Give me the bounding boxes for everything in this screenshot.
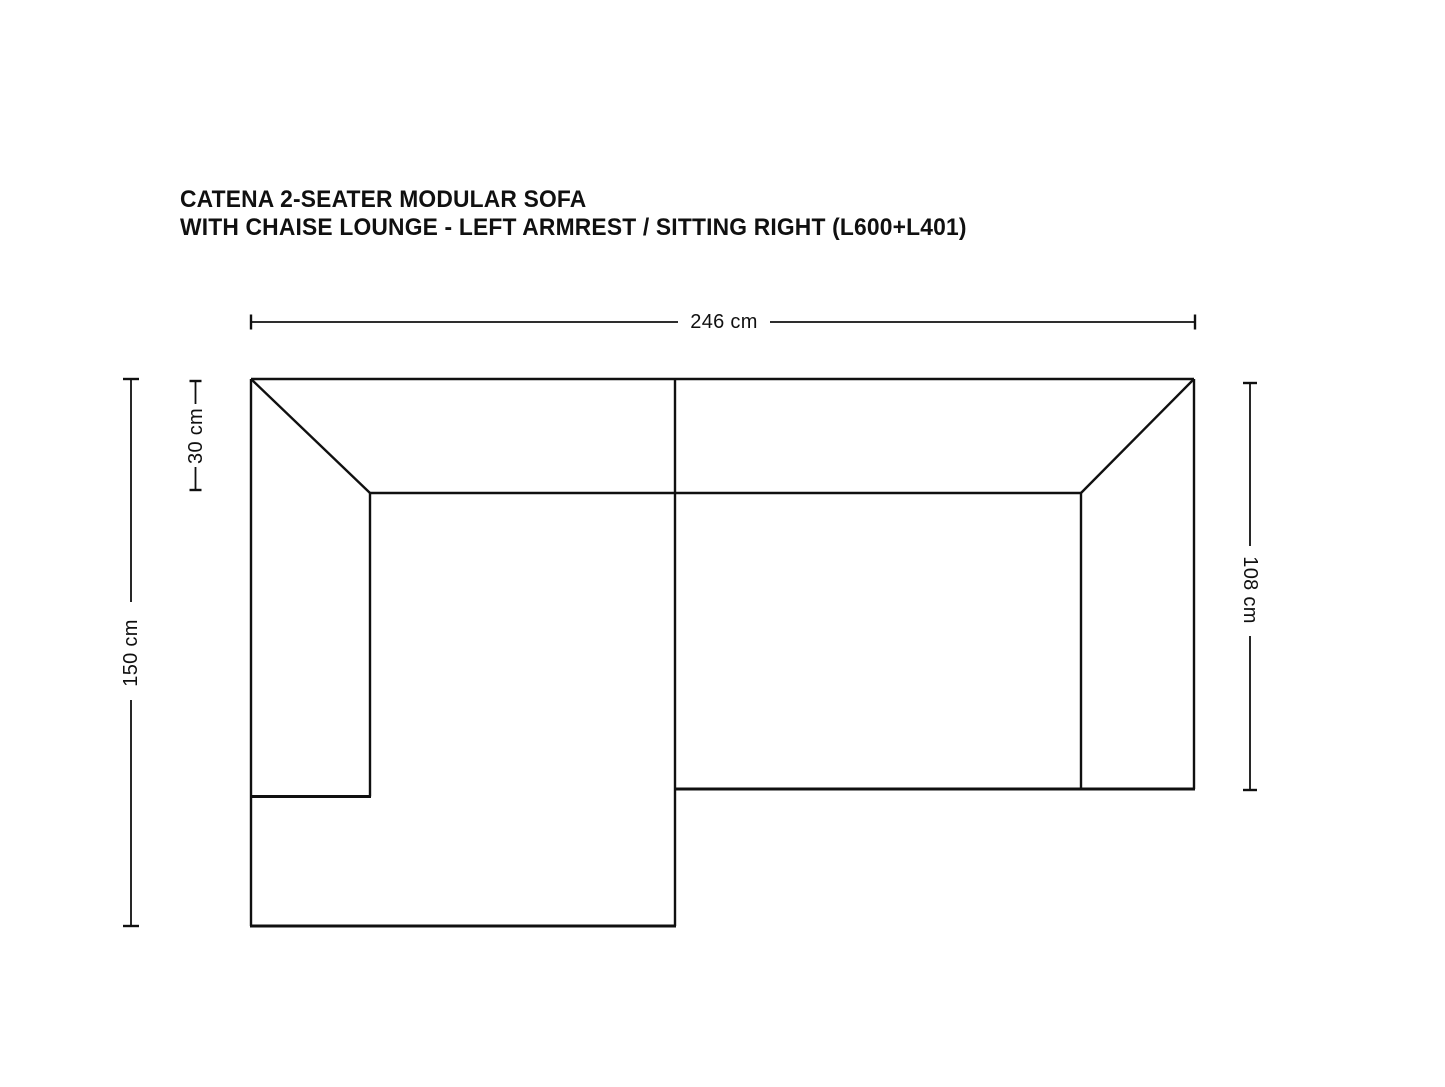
left-backrest-corner-diagonal xyxy=(251,379,370,493)
dimension-seat-depth-label: 108 cm xyxy=(1239,556,1261,623)
dimension-backrest-depth-label: 30 cm xyxy=(185,408,207,464)
dimension-total-width: 246 cm xyxy=(251,311,1195,333)
dimension-seat-depth: 108 cm xyxy=(1239,383,1261,790)
dimension-chaise-depth-label: 150 cm xyxy=(120,619,142,686)
right-backrest-corner-diagonal xyxy=(1081,379,1194,493)
dimension-backrest-depth: 30 cm xyxy=(185,381,207,490)
product-dimension-diagram: CATENA 2-SEATER MODULAR SOFA WITH CHAISE… xyxy=(0,0,1445,1087)
sofa-outline xyxy=(250,379,1195,926)
dimension-chaise-depth: 150 cm xyxy=(120,379,142,926)
sofa-top-view-drawing: 246 cm 150 cm 30 cm 108 cm xyxy=(0,0,1445,1087)
dimension-total-width-label: 246 cm xyxy=(690,311,757,333)
